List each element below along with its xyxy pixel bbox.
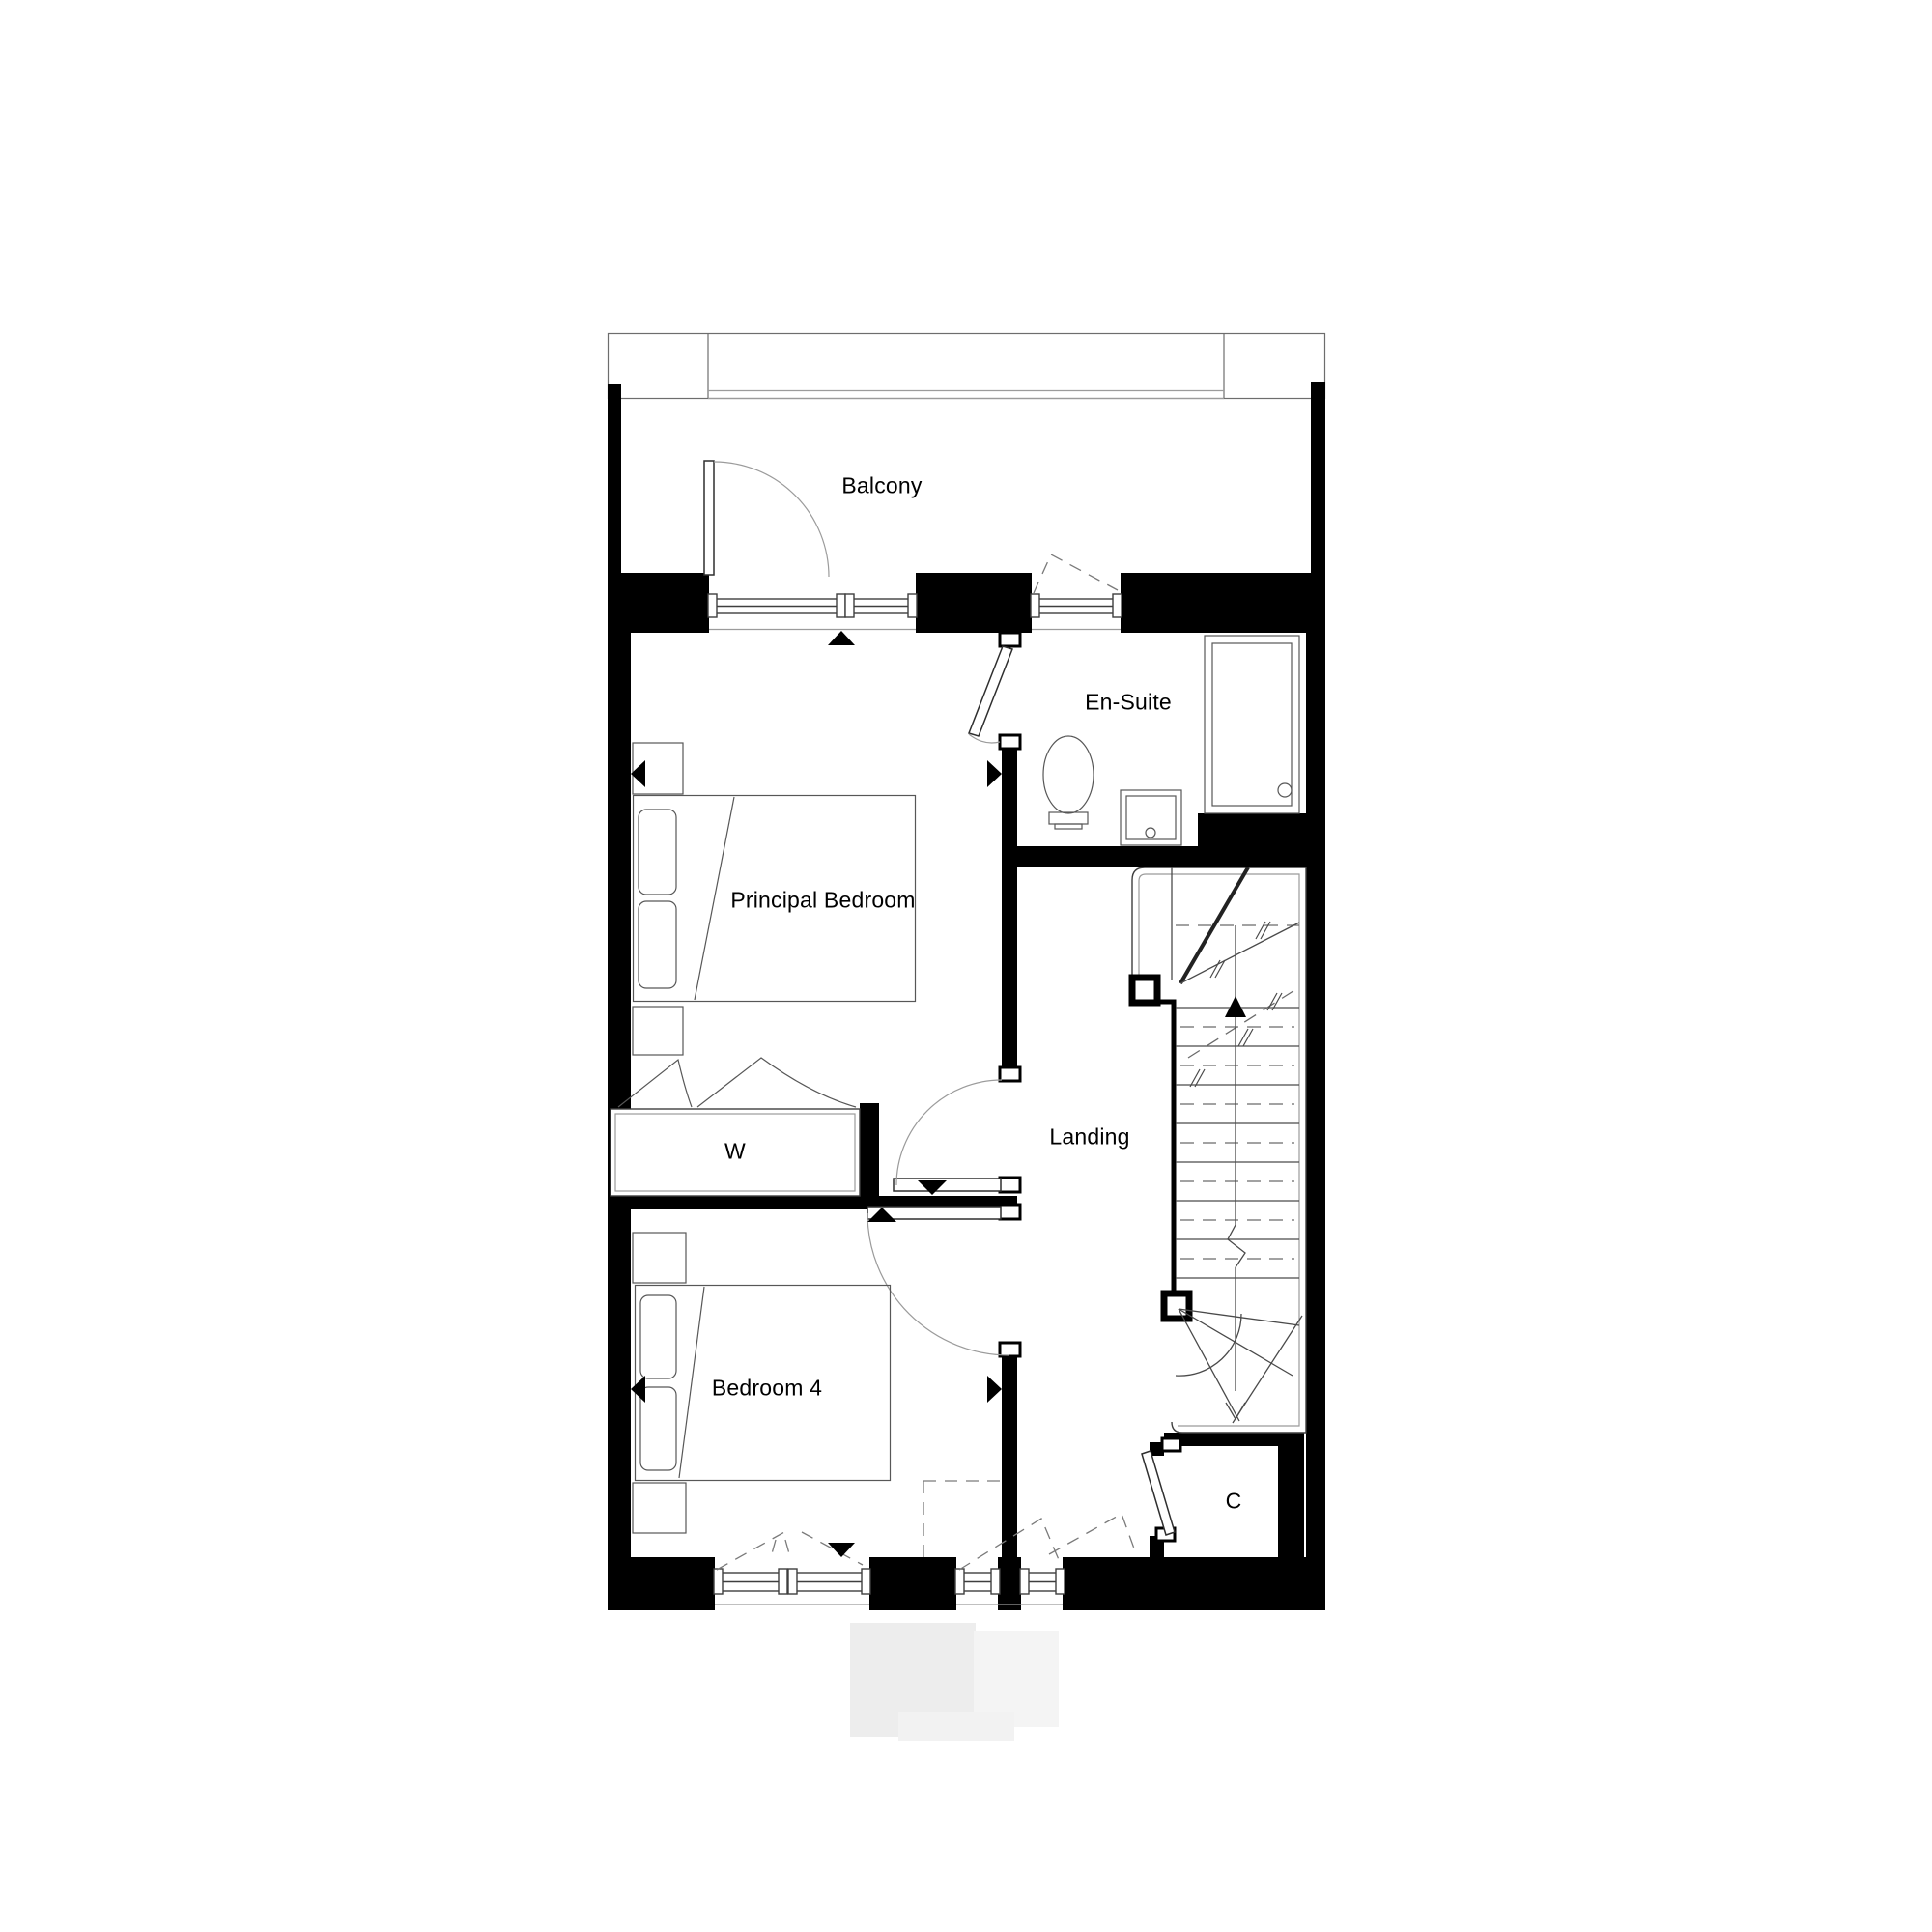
bedside-table — [633, 1483, 686, 1533]
balcony-door — [704, 461, 829, 577]
newel-post — [1164, 1293, 1189, 1319]
bedside-table — [633, 1007, 683, 1055]
room-label-wardrobe: W — [724, 1139, 746, 1165]
room-label-principal-bedroom: Principal Bedroom — [730, 888, 915, 914]
balcony-parapet — [609, 333, 1325, 399]
stair-break-lines — [1180, 867, 1299, 1087]
stair-overhead-dashed — [1176, 925, 1299, 1259]
bulkhead-dashed-outline — [923, 1481, 1002, 1557]
arrow-right-icon — [987, 1376, 1002, 1403]
stair-walk-line — [1225, 925, 1246, 1419]
room-label-balcony: Balcony — [841, 473, 922, 499]
arrow-left-icon — [631, 1376, 645, 1403]
ensuite-door — [969, 633, 1020, 749]
arrow-right-icon — [987, 760, 1002, 787]
stair-up-arrow-icon — [1225, 996, 1246, 1017]
toilet — [1043, 736, 1094, 829]
watermark — [850, 1623, 1059, 1741]
window-balcony-door-screen — [708, 594, 917, 630]
hanging-clothes-icon — [697, 1058, 856, 1107]
arrow-down-icon — [828, 1543, 855, 1557]
window-ensuite — [1031, 554, 1122, 630]
room-label-cupboard: C — [1226, 1489, 1242, 1515]
room-label-bedroom-4: Bedroom 4 — [712, 1376, 822, 1402]
newel-post — [1132, 978, 1157, 1003]
wash-basin — [1121, 790, 1181, 845]
floor-plan-drawing — [0, 0, 1932, 1932]
floor-plan-canvas: Balcony En-Suite Principal Bedroom Landi… — [0, 0, 1932, 1932]
wardrobe-unit — [611, 1058, 860, 1196]
arrow-up-icon — [828, 631, 855, 645]
stair-winders — [1176, 1309, 1302, 1423]
room-label-en-suite: En-Suite — [1085, 690, 1172, 716]
bedside-table — [633, 1233, 686, 1283]
room-label-landing: Landing — [1049, 1124, 1129, 1151]
staircase — [1132, 867, 1306, 1433]
shower-tray — [1205, 636, 1299, 813]
landing-door — [894, 1067, 1020, 1195]
